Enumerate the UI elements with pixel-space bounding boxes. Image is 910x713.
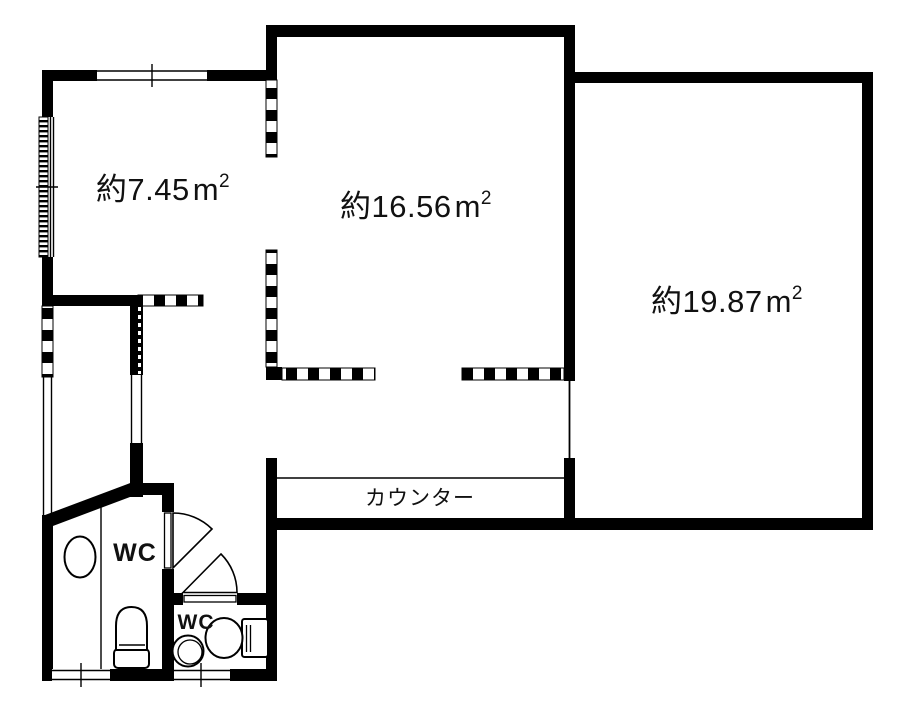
wall-center-east-lower <box>564 458 575 519</box>
door-wc1-leaf <box>165 513 172 568</box>
room-west-area-label: 約7.45m2 <box>96 171 230 207</box>
wall-center-room-top <box>266 25 575 37</box>
sink-wc1-icon <box>65 537 96 578</box>
wall-roomwest-bottom <box>42 295 138 306</box>
wall-wc2-top-a <box>174 593 183 605</box>
wall-wc1-east-a <box>162 495 174 513</box>
wall-bottom-west-c <box>230 669 277 681</box>
wall-bottom-west-a <box>42 669 52 681</box>
hatch-centerroom-bottom-east <box>462 368 564 380</box>
door-wc2-leaf <box>184 596 236 603</box>
wall-hatch-corner <box>266 367 282 380</box>
hatch-centerroom-bottom-west <box>282 368 375 380</box>
hatch-centerroom-west-upper <box>266 80 277 157</box>
toilet-wc2-icon <box>206 618 269 658</box>
floorplan-page: カウンター <box>0 0 910 713</box>
room-center-area-label: 約16.56m2 <box>340 188 492 224</box>
sink-wc2-icon <box>173 636 204 667</box>
wc2-label: WC <box>178 611 215 634</box>
wall-west-top <box>42 70 53 117</box>
wall-center-room-left-stub <box>266 25 277 81</box>
hatch-centerroom-west-lower <box>266 250 277 367</box>
wall-top-east <box>575 72 873 83</box>
toilet-wc1-icon <box>114 607 149 668</box>
hatch-west-wall-lower <box>42 306 53 377</box>
room-east-area-label: 約19.87m2 <box>651 283 803 319</box>
wall-center-east-upper <box>564 25 575 381</box>
counter-label: カウンター <box>365 487 475 510</box>
hatch-roomwest-bottom <box>138 295 203 306</box>
wall-top-west-b <box>207 70 268 81</box>
floorplan-drawing: カウンター <box>0 0 910 713</box>
wall-east-exterior <box>862 72 873 530</box>
wall-west-bottom <box>42 515 53 681</box>
wall-bottom-west-b <box>110 669 174 681</box>
wc1-label: WC <box>113 539 157 567</box>
wall-corridor-upper <box>130 305 143 375</box>
wall-bottom-east <box>277 518 873 530</box>
